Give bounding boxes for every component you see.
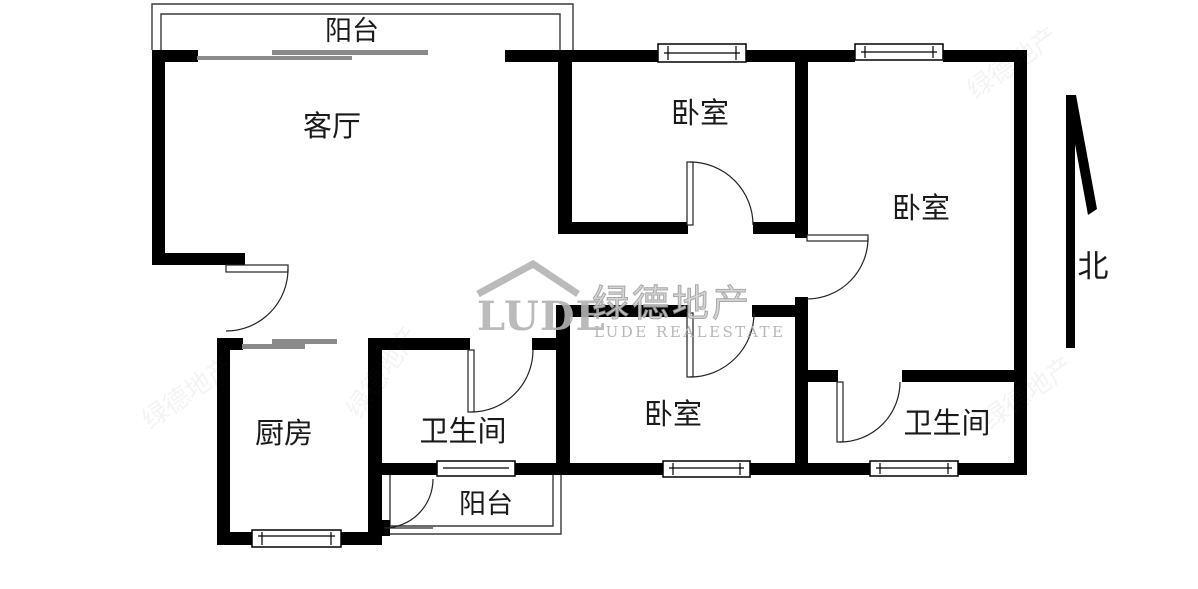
room-label-balcony-top: 阳台 [325,16,379,47]
wall [795,297,808,475]
wall [752,305,797,317]
faint-watermark: 绿德地产 [962,21,1064,105]
wall [753,222,797,234]
north-label: 北 [1078,249,1109,285]
watermark-brand-en: LUDE REALESTATE [594,323,785,341]
room-label-living-room: 客厅 [303,109,361,143]
watermark-roof-icon [478,264,578,294]
wall [750,463,870,475]
faint-watermark: 绿德地产 [977,351,1079,435]
wall [902,370,1027,382]
kitchen-sliding-door [242,344,305,349]
room-label-bathroom-left: 卫生间 [419,414,506,448]
north-arrow: 北 [1066,95,1109,348]
room-labels: 阳台 客厅 卧室 卧室 厨房 卫生间 卧室 卫生间 阳台 [255,16,991,520]
window-bedroom-right [855,44,943,60]
door-balcony-bottom [384,479,433,528]
door-bathroom-right [837,382,900,442]
room-label-kitchen: 厨房 [255,416,313,450]
wall [505,50,658,62]
door-bedroom-top [687,162,753,225]
window-kitchen [252,530,341,547]
room-label-bedroom-right: 卧室 [892,191,950,225]
sliding-doors [197,50,428,349]
wall [795,50,808,238]
door-entry [226,265,288,331]
balcony-outlines [152,4,573,534]
wall [556,463,665,475]
floor-plan-drawing: 北 LUDE 绿德地产 LUDE REALESTATE 绿德地产 绿德地产 绿德… [0,0,1198,589]
room-label-balcony-bottom: 阳台 [459,489,513,520]
faint-watermark: 绿德地产 [341,322,425,424]
watermark-logo-text: LUDE [477,293,607,340]
wall [152,50,165,265]
floor-plan-page: 北 LUDE 绿德地产 LUDE REALESTATE 绿德地产 绿德地产 绿德… [0,0,1198,589]
window-bathroom-right [870,461,958,476]
wall [558,62,572,233]
window-bedroom-bottom [663,461,750,477]
balcony-sliding-door [197,56,352,60]
watermark-brand-cn: 绿德地产 [592,282,752,325]
kitchen-sliding-door [272,339,337,344]
wall [152,253,245,265]
window-bathroom-left [437,461,515,476]
wall [515,463,556,475]
wall [958,463,1027,475]
watermark: LUDE 绿德地产 LUDE REALESTATE [477,264,785,341]
wall [368,463,437,475]
balcony-sliding-door [272,50,428,55]
room-label-bedroom-bottom: 卧室 [644,397,702,431]
wall [558,222,688,234]
door-bathroom-left [468,350,533,412]
wall [795,370,838,382]
window-bedroom-top [658,44,746,62]
room-label-bathroom-right: 卫生间 [903,406,990,440]
wall [217,338,243,350]
door-bedroom-right [807,235,868,299]
room-label-bedroom-top: 卧室 [671,96,729,130]
